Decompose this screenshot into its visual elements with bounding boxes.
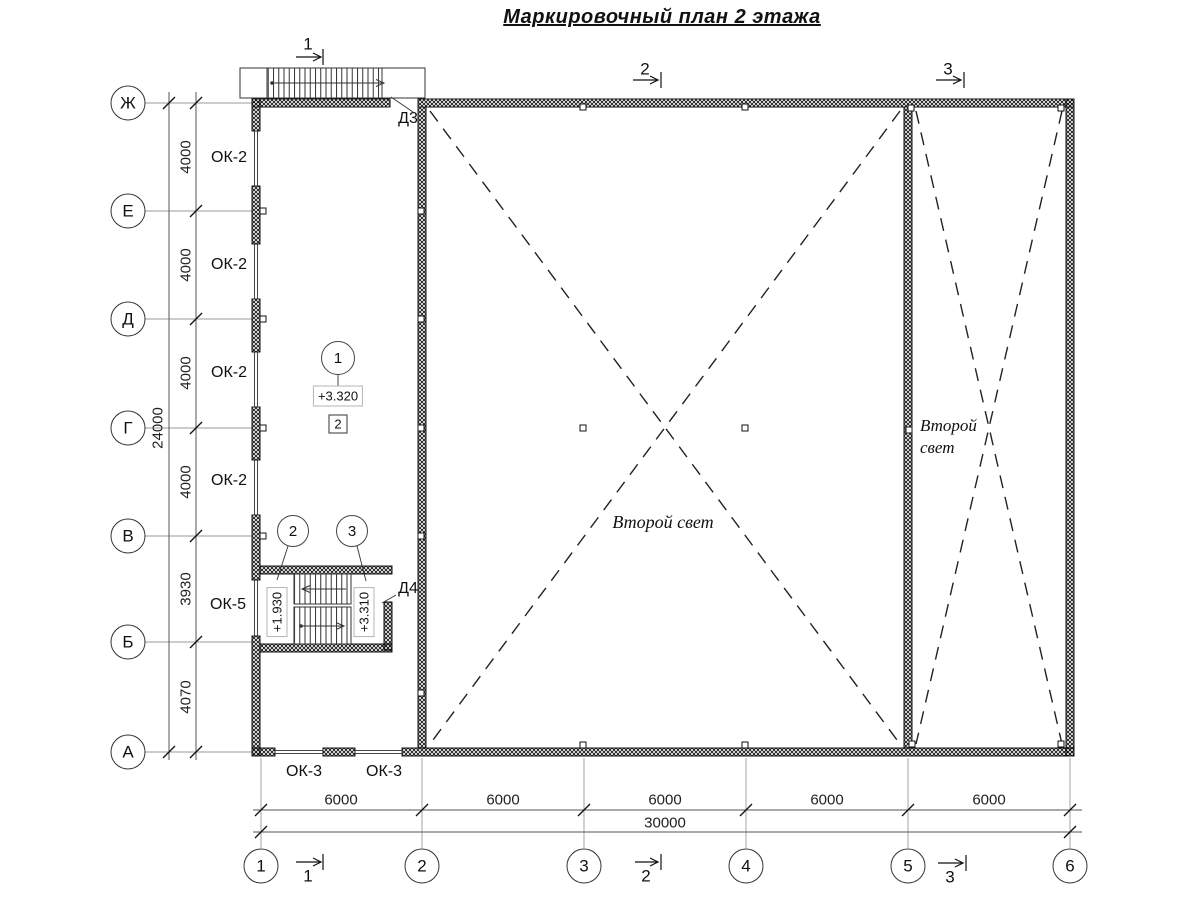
dim-h-2: 6000 (486, 793, 519, 808)
row-axis-zh-label: Ж (120, 93, 136, 113)
dim-h-total: 30000 (644, 816, 686, 831)
axis-extension-lines (145, 103, 1070, 848)
floor-plan-canvas: Маркировочный план 2 этажа Ж Е Д Г В Б А… (0, 0, 1200, 900)
floor-plan-drawing (0, 0, 1200, 900)
dim-v-1: 4000 (179, 140, 194, 173)
node-bubble-3: 3 (336, 515, 368, 547)
door-tag-d4: Д4 (398, 581, 418, 597)
window-tag-ok2-2: ОК-2 (211, 257, 247, 273)
row-axis-v: В (111, 519, 146, 554)
window-tag-ok5: ОК-5 (210, 597, 246, 613)
row-axis-e-label: Е (122, 201, 133, 221)
col-axis-3: 3 (567, 849, 602, 884)
node-bubble-2: 2 (277, 515, 309, 547)
row-axis-e: Е (111, 194, 146, 229)
section-bottom-1: 1 (303, 868, 312, 885)
second-light-right-line1: Второй (920, 415, 977, 437)
col-axis-4: 4 (729, 849, 764, 884)
row-axis-a-label: А (122, 742, 133, 762)
col-axis-1: 1 (244, 849, 279, 884)
window-tag-ok2-3: ОК-2 (211, 365, 247, 381)
row-axis-d-label: Д (122, 309, 134, 329)
col-axis-2-label: 2 (417, 856, 426, 876)
dim-h-3: 6000 (648, 793, 681, 808)
node-box-2-label: 2 (334, 417, 341, 432)
drawing-title: Маркировочный план 2 этажа (503, 7, 821, 27)
dim-v-total: 24000 (151, 407, 166, 449)
level-mark-floor: +3.320 (313, 386, 363, 407)
door-tag-d3: Д3 (398, 111, 418, 127)
row-axis-zh: Ж (111, 86, 146, 121)
external-stair (240, 68, 425, 98)
row-axis-d: Д (111, 302, 146, 337)
window-tag-ok3-2: ОК-3 (366, 764, 402, 780)
window-tag-ok2-4: ОК-2 (211, 473, 247, 489)
dim-h-1: 6000 (324, 793, 357, 808)
row-axis-g-label: Г (123, 418, 132, 438)
dim-h-4: 6000 (810, 793, 843, 808)
dim-h-5: 6000 (972, 793, 1005, 808)
dim-v-3: 4000 (179, 356, 194, 389)
node-bubble-1: 1 (321, 341, 355, 375)
node-box-2: 2 (329, 415, 348, 434)
col-axis-6: 6 (1053, 849, 1088, 884)
window-tag-ok3-1: ОК-3 (286, 764, 322, 780)
section-bottom-2: 2 (641, 868, 650, 885)
col-axis-6-label: 6 (1065, 856, 1074, 876)
dim-v-6: 4070 (179, 680, 194, 713)
section-top-2: 2 (640, 61, 649, 78)
section-top-1: 1 (303, 36, 312, 53)
row-axis-b-label: Б (122, 632, 133, 652)
row-axis-v-label: В (122, 526, 133, 546)
dimension-lines (169, 92, 1082, 832)
col-axis-3-label: 3 (579, 856, 588, 876)
section-bottom-3: 3 (945, 869, 954, 886)
col-axis-1-label: 1 (256, 856, 265, 876)
node-bubble-3-label: 3 (348, 523, 356, 540)
col-axis-5: 5 (891, 849, 926, 884)
row-axis-b: Б (111, 625, 146, 660)
col-axis-5-label: 5 (903, 856, 912, 876)
col-axis-2: 2 (405, 849, 440, 884)
section-top-3: 3 (943, 61, 952, 78)
window-tag-ok2-1: ОК-2 (211, 150, 247, 166)
row-axis-a: А (111, 735, 146, 770)
level-mark-stair-mid: +1.930 (267, 587, 288, 637)
row-axis-g: Г (111, 411, 146, 446)
node-bubble-2-label: 2 (289, 523, 297, 540)
col-axis-4-label: 4 (741, 856, 750, 876)
dim-v-2: 4000 (179, 248, 194, 281)
second-light-label-right: Второй свет (920, 415, 977, 459)
second-light-right-line2: свет (920, 437, 977, 459)
internal-stair (294, 574, 351, 644)
window-lines (255, 131, 403, 754)
level-mark-stair-upper: +3.310 (354, 587, 375, 637)
second-light-label-main: Второй свет (612, 513, 713, 531)
dim-v-5: 3930 (179, 572, 194, 605)
dim-v-4: 4000 (179, 465, 194, 498)
node-bubble-1-label: 1 (334, 350, 342, 367)
